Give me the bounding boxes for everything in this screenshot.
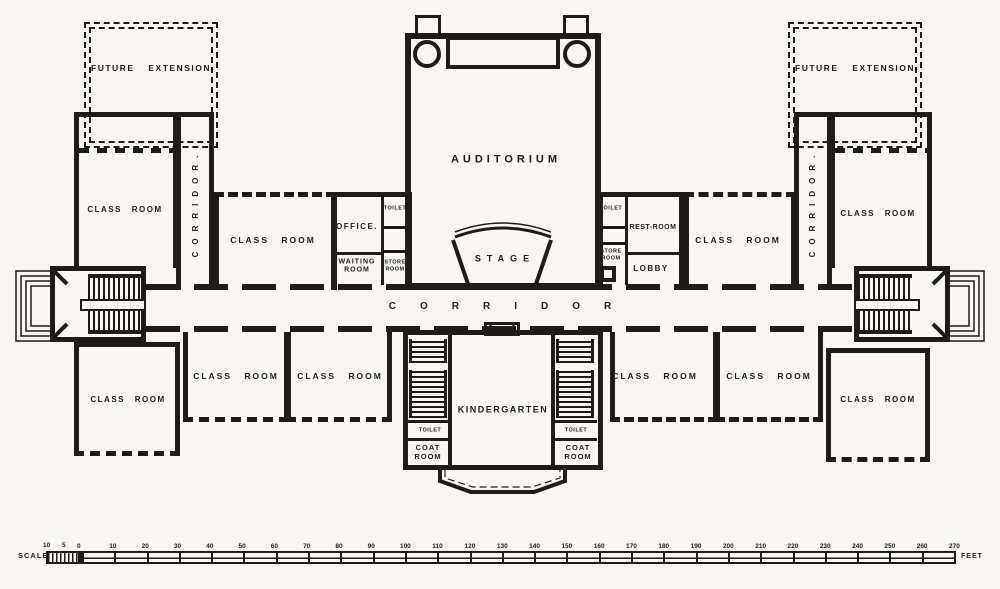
wall-coat-right-top: [553, 438, 597, 441]
toilet-upper-right-label: TOILET: [600, 206, 622, 213]
wall-coat-left-top: [406, 438, 450, 441]
scale-tick: 80: [340, 553, 342, 562]
store-room-left-label: STORE ROOM: [380, 259, 410, 272]
wall-window-wing-upper-left: [79, 148, 173, 153]
scale-tick: 260: [922, 553, 924, 562]
scale-tick: 90: [373, 553, 375, 562]
class-room-wing-upper-right-label: CLASS ROOM: [840, 209, 915, 219]
class-room-wing-lower-left-label: CLASS ROOM: [90, 395, 165, 405]
scale-tick: 50: [243, 553, 245, 562]
class-room-upper-right-label: CLASS ROOM: [695, 235, 781, 245]
scale-unit-feet: FEET: [961, 553, 983, 560]
auditorium-corner-room-right: [563, 40, 591, 68]
class-room-upper-left-label: CLASS ROOM: [230, 235, 316, 245]
scale-tick-number: 160: [594, 543, 605, 550]
scale-tick: 120: [470, 553, 472, 562]
wall-window-wing-upper-right: [835, 148, 927, 153]
entry-steps-right-icon: [946, 271, 984, 341]
class-room-wing-lower-right-label: CLASS ROOM: [840, 395, 915, 405]
staircase-kg-right-lower: [556, 370, 594, 418]
stair-landing-left: [80, 299, 146, 311]
scale-tick-number: 140: [529, 543, 540, 550]
stair-landing-right: [854, 299, 920, 311]
scale-tick: 200: [728, 553, 730, 562]
scale-tick-number: 240: [852, 543, 863, 550]
coat-room-right-label: COAT ROOM: [554, 443, 602, 461]
scale-ruler: 0102030405060708090100110120130140150160…: [80, 551, 956, 564]
scale-tick-number: 0: [77, 543, 81, 550]
staircase-kg-left-lower: [409, 370, 447, 418]
scale-tick: 0: [82, 553, 84, 562]
toilet-upper-left-label: TOILET: [384, 206, 406, 213]
wall-toilet-kg-right-top: [553, 420, 597, 423]
scale-tick-number: 170: [626, 543, 637, 550]
auditorium-label: AUDITORIUM: [451, 153, 561, 166]
class-room-lower-4-label: CLASS ROOM: [726, 371, 812, 381]
scale-tick: 40: [211, 553, 213, 562]
scale-tick-number: 180: [658, 543, 669, 550]
auditorium-vestibule: [446, 36, 560, 69]
scale-tick: 220: [793, 553, 795, 562]
scale-tick-number: 230: [820, 543, 831, 550]
office-label: OFFICE.: [336, 222, 378, 232]
scale-subtick-5: 5: [62, 542, 66, 549]
scale-tick: 150: [566, 553, 568, 562]
scale-tick-number: 80: [335, 543, 342, 550]
kindergarten-niche: [484, 322, 520, 336]
scale-tick-number: 100: [400, 543, 411, 550]
scale-tick: 140: [534, 553, 536, 562]
scale-tick: 70: [308, 553, 310, 562]
wall-corridor-top: [146, 284, 858, 290]
scale-tick: 270: [954, 553, 956, 562]
auditorium-top-projection-left: [415, 15, 441, 37]
scale-tick-number: 90: [368, 543, 375, 550]
scale-tick: 10: [114, 553, 116, 562]
scale-tick-number: 110: [432, 543, 443, 550]
waiting-room-label: WAITING ROOM: [330, 259, 384, 276]
scale-tick-number: 260: [917, 543, 928, 550]
scale-tick-number: 10: [109, 543, 116, 550]
scale-tick: 30: [179, 553, 181, 562]
scale-tick: 180: [663, 553, 665, 562]
kindergarten-label: KINDERGARTEN: [458, 405, 549, 416]
corridor-main-label: CORRIDOR: [389, 301, 635, 313]
staircase-kg-right-upper: [556, 339, 594, 363]
scale-tick: 210: [760, 553, 762, 562]
scale-tick-number: 40: [206, 543, 213, 550]
wall-restblock-vertical: [625, 197, 628, 285]
scale-tick-number: 210: [755, 543, 766, 550]
scale-tick: 170: [631, 553, 633, 562]
scale-tick: 190: [696, 553, 698, 562]
scale-subdivision-block: [46, 551, 80, 564]
scale-tick-number: 200: [723, 543, 734, 550]
wall-office-waiting: [334, 252, 384, 255]
wall-toilet-right-bottom: [600, 226, 627, 229]
toilet-kg-right-label: TOILET: [565, 428, 587, 435]
stage-label: STAGE: [475, 254, 535, 265]
auditorium-top-projection-right: [563, 15, 589, 37]
rest-room-label: REST-ROOM: [630, 224, 677, 232]
wall-toilet-kg-left-top: [406, 420, 450, 423]
coat-room-left-label: COAT ROOM: [404, 443, 452, 461]
wall-rest-lobby: [627, 252, 682, 255]
scale-tick-number: 220: [788, 543, 799, 550]
class-room-lower-3-label: CLASS ROOM: [612, 371, 698, 381]
room-class-wing-lower-right: [826, 348, 930, 462]
scale-subtick-10: 10: [43, 542, 50, 549]
scale-tick: 100: [405, 553, 407, 562]
scale-tick: 230: [825, 553, 827, 562]
entry-steps-left-icon: [16, 271, 54, 341]
scale-tick: 250: [889, 553, 891, 562]
scale-tick-number: 70: [303, 543, 310, 550]
scale-tick: 160: [599, 553, 601, 562]
corridor-left-label: CORRIDOR.: [191, 149, 201, 258]
floor-plan: FUTURE EXTENSION FUTURE EXTENSION CLASS …: [0, 0, 1000, 589]
scale-tick-number: 30: [174, 543, 181, 550]
future-extension-right-label: FUTURE EXTENSION: [795, 63, 915, 73]
scale-tick-number: 20: [142, 543, 149, 550]
auditorium-corner-room-left: [413, 40, 441, 68]
scale-tick-number: 250: [884, 543, 895, 550]
class-room-wing-upper-left-label: CLASS ROOM: [87, 205, 162, 215]
lobby-label: LOBBY: [633, 264, 669, 274]
wall-store-right-top: [600, 242, 627, 245]
class-room-lower-2-label: CLASS ROOM: [297, 371, 383, 381]
toilet-kg-left-label: TOILET: [419, 428, 441, 435]
room-class-wing-upper-right: [830, 112, 932, 268]
scale-tick-number: 130: [497, 543, 508, 550]
class-room-lower-1-label: CLASS ROOM: [193, 371, 279, 381]
room-class-wing-upper-left: [74, 112, 178, 268]
scale-tick-number: 50: [238, 543, 245, 550]
scale-tick: 20: [147, 553, 149, 562]
store-room-right-label: STORE ROOM: [596, 248, 626, 261]
scale-tick-number: 190: [691, 543, 702, 550]
staircase-kg-left-upper: [409, 339, 447, 363]
scale-tick-number: 270: [949, 543, 960, 550]
scale-tick: 240: [857, 553, 859, 562]
scale-tick-number: 150: [561, 543, 572, 550]
corridor-right-label: CORRIDOR.: [808, 149, 818, 258]
scale-tick: 60: [276, 553, 278, 562]
scale-label: SCALE: [18, 551, 48, 560]
lobby-closet: [600, 266, 616, 282]
scale-tick: 110: [437, 553, 439, 562]
scale-tick-number: 60: [271, 543, 278, 550]
future-extension-left-label: FUTURE EXTENSION: [91, 63, 211, 73]
scale-tick-number: 120: [465, 543, 476, 550]
kindergarten-bay-window: [440, 467, 565, 492]
scale-tick: 130: [502, 553, 504, 562]
